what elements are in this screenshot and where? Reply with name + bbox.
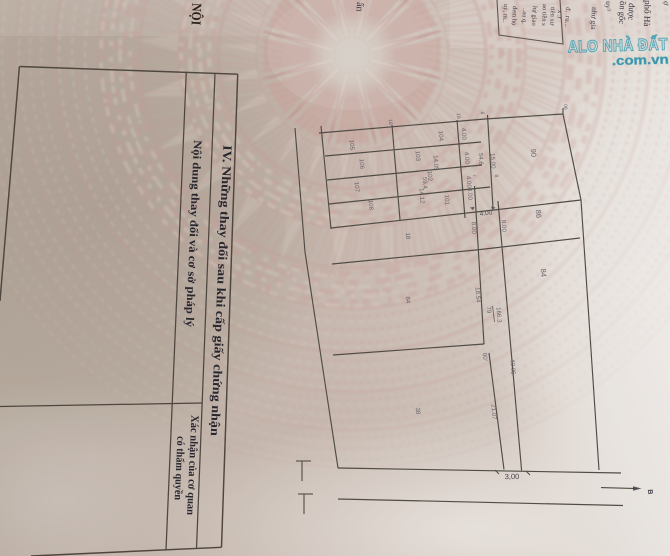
svg-text:90: 90 (529, 148, 539, 157)
svg-text:4.00: 4.00 (460, 128, 468, 141)
svg-text:166.3: 166.3 (494, 307, 502, 323)
svg-text:3,00: 3,00 (505, 472, 520, 481)
svg-text:NỘI: NỘI (189, 3, 205, 26)
svg-text:00': 00' (481, 353, 489, 362)
svg-text:108: 108 (367, 199, 375, 210)
svg-text:18: 18 (455, 113, 461, 119)
svg-text:18.54: 18.54 (473, 287, 481, 303)
svg-text:14.12: 14.12 (417, 188, 425, 204)
svg-text:8.00: 8.00 (500, 220, 508, 233)
svg-text:uy³: uy³ (604, 1, 613, 12)
svg-text:14.05: 14.05 (431, 155, 439, 171)
svg-text:84: 84 (404, 296, 412, 304)
svg-text:4.00: 4.00 (463, 152, 471, 165)
svg-text:4.00: 4.00 (466, 188, 474, 201)
svg-text:54.6: 54.6 (477, 153, 485, 166)
svg-text:86: 86 (534, 209, 544, 218)
svg-text:103: 103 (414, 150, 422, 161)
svg-text:được: được (626, 3, 637, 21)
svg-text:phố Hà: phố Hà (642, 0, 653, 27)
svg-text:107: 107 (353, 181, 361, 192)
svg-text:40.05: 40.05 (508, 359, 516, 375)
svg-text:101: 101 (443, 194, 451, 205)
svg-text:B: B (646, 489, 653, 495)
svg-text:106: 106 (358, 158, 366, 169)
svg-text:104: 104 (437, 130, 445, 141)
svg-text:8.00: 8.00 (470, 222, 478, 235)
svg-text:18: 18 (404, 232, 412, 240)
svg-text:84: 84 (539, 268, 549, 277)
svg-text:21.07: 21.07 (489, 404, 497, 420)
svg-text:79: 79 (485, 306, 493, 314)
svg-text:.com.vn: .com.vn (612, 52, 669, 69)
svg-text:105: 105 (348, 139, 356, 150)
svg-text:ẩn: ẩn (354, 2, 365, 12)
svg-text:15.00: 15.00 (488, 153, 496, 169)
svg-text:ồn gốc: ồn gốc (617, 1, 628, 25)
svg-text:18: 18 (387, 119, 393, 125)
svg-text:06: 06 (562, 104, 568, 110)
svg-text:38: 38 (414, 407, 422, 415)
svg-text:như gia: như gia (589, 7, 599, 31)
svg-text:đ. .ru...: đ. .ru... (563, 7, 572, 27)
